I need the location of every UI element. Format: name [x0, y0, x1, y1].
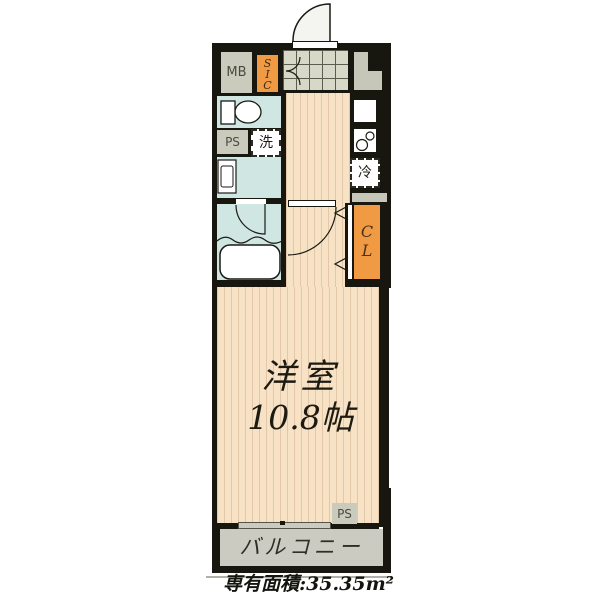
refrigerator-label: 冷: [350, 166, 380, 180]
meter-box-label: MB: [221, 66, 252, 79]
bath-water-line: [217, 237, 282, 243]
stove-burner-large: [357, 140, 368, 151]
bathtub: [220, 245, 280, 279]
toilet-tank: [221, 101, 235, 124]
closet-folding-door-symbol: [335, 206, 348, 271]
balcony-label: バルコニー: [220, 537, 383, 558]
room-door-swing: [288, 207, 336, 255]
pipe-space-top-label: PS: [217, 136, 248, 148]
washbasin-bowl: [221, 166, 233, 187]
area-note: 専有面積:35.35m²: [200, 575, 394, 594]
closet-label: C L: [353, 222, 381, 260]
stove-burner-small: [366, 132, 374, 140]
sic-door-swing: [286, 57, 300, 85]
window-center-tick: [280, 521, 285, 525]
floor-plan-canvas: MB S I C PS 洗 冷 C L 洋室 10.8帖 PS バルコニー 専有…: [0, 0, 600, 600]
room-name-label: 洋室: [228, 360, 373, 394]
pipe-space-bottom-label: PS: [332, 508, 357, 520]
laundry-label: 洗: [251, 136, 281, 150]
toilet-bowl: [235, 101, 261, 123]
fixtures-overlay: [0, 0, 600, 600]
room-size-label: 10.8帖: [218, 401, 383, 434]
entrance-door-swing: [293, 4, 330, 41]
sic-label: S I C: [255, 58, 280, 91]
bathroom-door-swing: [236, 204, 265, 234]
